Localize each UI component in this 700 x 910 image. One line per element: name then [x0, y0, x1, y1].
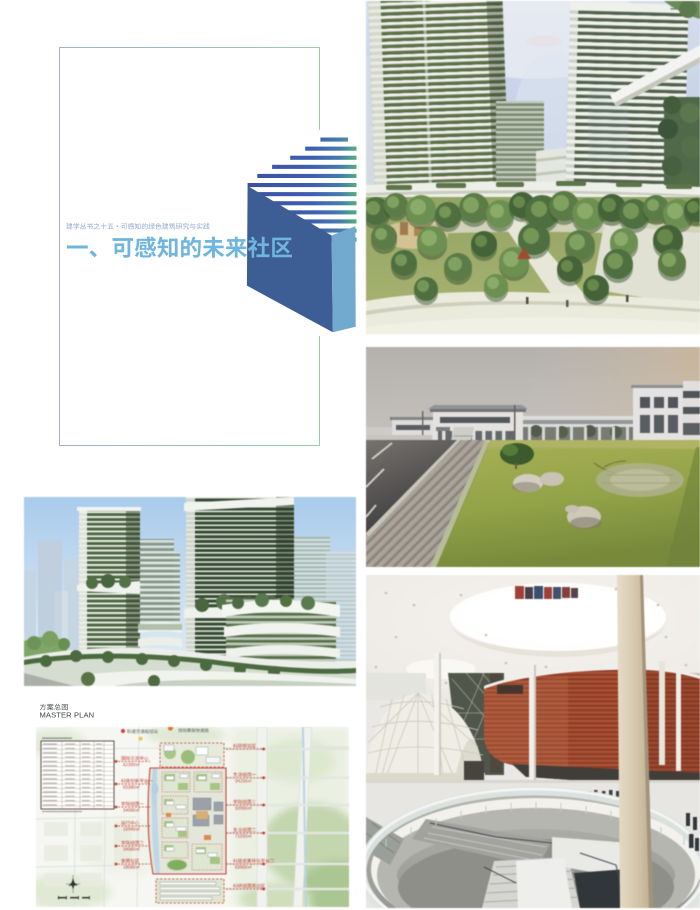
svg-text:MASTER PLAN: MASTER PLAN [40, 711, 95, 720]
